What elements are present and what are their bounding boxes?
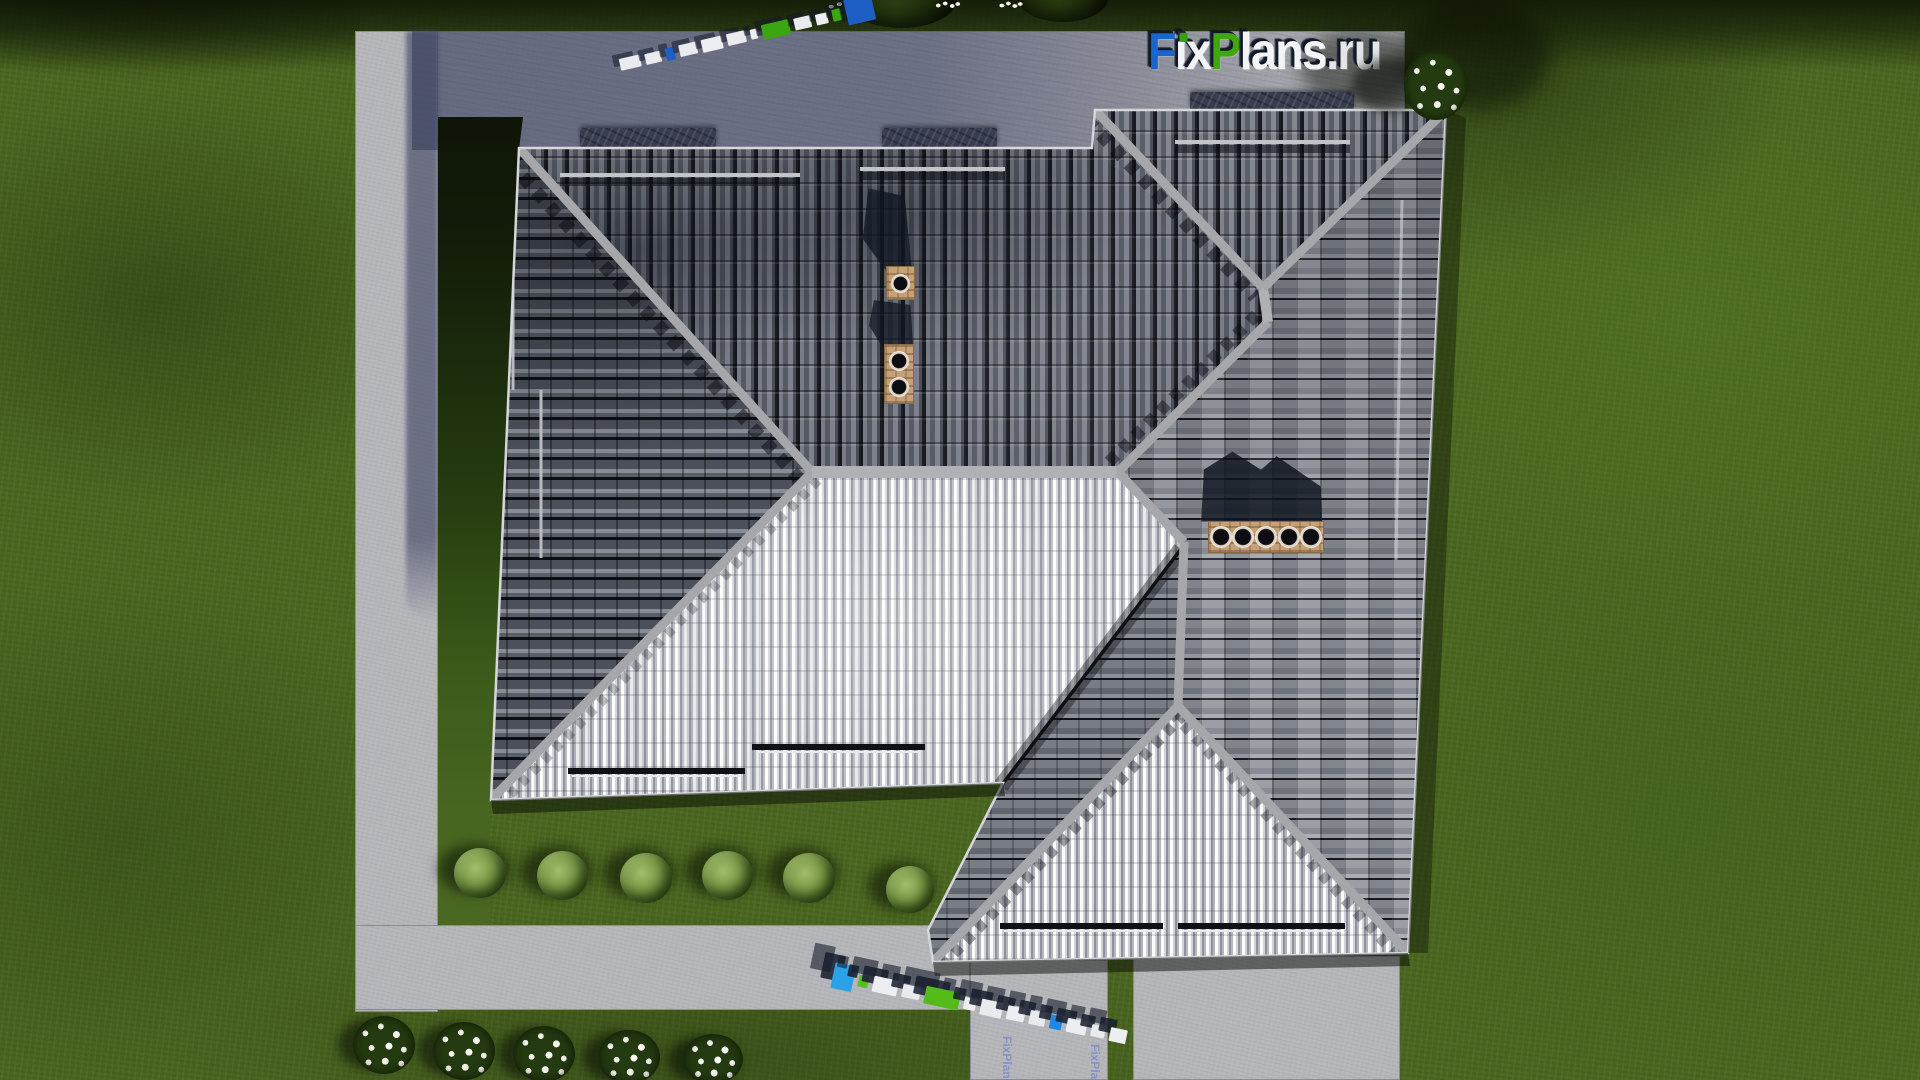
bush: [537, 851, 588, 900]
watermark-3d-block: [644, 50, 662, 64]
logo-letter: s: [1302, 23, 1326, 81]
chimney-flue: [1210, 526, 1232, 548]
scene-3d-roof-top-view: FixPlans.ru FixPlans.ru FixPlans.ru: [0, 0, 1920, 1080]
chimney-flue: [1232, 526, 1254, 548]
flower-cluster: [598, 1030, 660, 1080]
logo-letter: r: [1337, 23, 1353, 81]
logo-letter: x: [1186, 23, 1210, 81]
watermark-3d-block: [793, 15, 812, 30]
driveway: [1133, 956, 1400, 1080]
flower-cluster: [353, 1016, 415, 1074]
watermark-3d-block: [749, 28, 758, 39]
dark-wall-strip-2: [882, 128, 997, 147]
watermark-3d-block: [1108, 1027, 1128, 1044]
watermark-3d-block: [962, 997, 977, 1011]
chimney-flue: [889, 351, 909, 371]
logo-letter: n: [1275, 23, 1302, 81]
flower-cluster: [513, 1026, 575, 1080]
logo-letter: a: [1251, 23, 1275, 81]
chimney-flue: [1255, 526, 1277, 548]
logo-letter: F: [1148, 23, 1175, 81]
fixplans-logo: FixPlans.ru: [1148, 26, 1381, 78]
watermark-3d-block: [831, 8, 842, 22]
watermark-3d-block: [726, 30, 747, 46]
dark-wall-strip-3: [1190, 92, 1354, 110]
watermark-3d-block: [979, 999, 1003, 1019]
watermark-3d-block: [700, 35, 724, 52]
watermark-3d-block: [923, 986, 960, 1011]
bush: [620, 853, 672, 903]
flower-cluster: [433, 1022, 495, 1080]
bush: [783, 853, 835, 903]
bush: [702, 851, 753, 900]
top-edge-flowers-2: [934, 0, 962, 10]
watermark-3d-block: [901, 983, 922, 1001]
bush: [886, 866, 934, 913]
watermark-3d-block: [858, 975, 870, 989]
logo-letter: l: [1240, 23, 1251, 81]
logo-letter: .: [1326, 23, 1337, 81]
flower-cluster-top-right: [1404, 50, 1468, 120]
top-edge-flowers-3: [998, 0, 1024, 10]
chimney-five-flue: [1208, 521, 1324, 553]
ground-watermark-text: FixPlans.ru: [1088, 1044, 1102, 1080]
logo-letter: i: [1175, 23, 1186, 81]
watermark-3d-block: [872, 976, 899, 997]
watermark-3d-block: [814, 12, 829, 26]
watermark-3d-block: [1029, 1010, 1047, 1027]
watermark-3d-block: [678, 41, 699, 57]
chimney-flue: [1300, 526, 1322, 548]
garden-path-left: [355, 31, 438, 1012]
logo-letter: P: [1210, 23, 1239, 81]
watermark-3d-block: [1006, 1005, 1027, 1023]
logo-i-dot-green: [1180, 33, 1188, 42]
watermark-3d-block: [1065, 1018, 1087, 1036]
watermark-3d-block: [619, 54, 642, 70]
watermark-3d-block: [760, 19, 791, 40]
chimney-flue: [1278, 526, 1300, 548]
chimney-single-flue: [886, 266, 915, 300]
chimney-flue: [889, 377, 909, 397]
ground-watermark-text: FixPlans.ru: [1000, 1036, 1014, 1080]
bush: [454, 848, 506, 898]
watermark-3d-block: [830, 962, 856, 992]
flower-cluster: [683, 1034, 743, 1080]
dark-wall-strip-1: [580, 128, 716, 147]
watermark-3d-block: [664, 46, 676, 61]
watermark-3d-block: [1090, 1024, 1106, 1039]
chimney-double-flue: [884, 344, 914, 404]
chimney-flue: [891, 274, 910, 293]
watermark-3d-block: [1049, 1014, 1063, 1030]
